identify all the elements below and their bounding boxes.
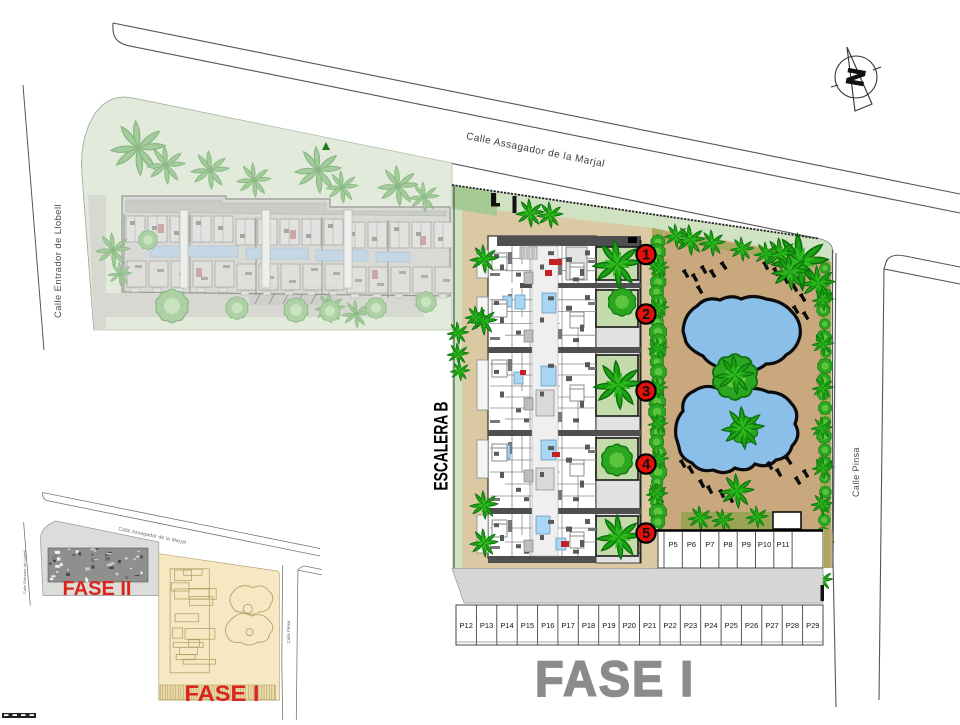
svg-text:P27: P27 [765,621,778,630]
svg-text:P29: P29 [806,621,819,630]
svg-text:P22: P22 [663,621,676,630]
svg-text:P21: P21 [643,621,656,630]
svg-text:P24: P24 [704,621,717,630]
svg-text:P18: P18 [582,621,595,630]
svg-text:P10: P10 [758,540,771,549]
svg-text:ESCALERA B: ESCALERA B [432,402,453,491]
svg-text:P16: P16 [541,621,554,630]
svg-text:FASE I: FASE I [185,681,260,706]
svg-text:FASE II: FASE II [63,578,132,600]
svg-text:1: 1 [642,248,650,264]
svg-text:P12: P12 [460,621,473,630]
svg-text:Calle Pinsa: Calle Pinsa [851,447,861,497]
svg-text:P20: P20 [623,621,636,630]
svg-text:P23: P23 [684,621,697,630]
svg-text:P5: P5 [669,540,678,549]
svg-text:P7: P7 [705,540,714,549]
svg-text:3: 3 [642,384,650,400]
svg-text:P17: P17 [561,621,574,630]
svg-text:P6: P6 [687,540,696,549]
svg-text:P25: P25 [725,621,738,630]
svg-text:4: 4 [642,457,650,473]
svg-text:Calle Pinsa: Calle Pinsa [286,620,291,643]
svg-text:P15: P15 [521,621,534,630]
svg-text:P13: P13 [480,621,493,630]
svg-text:FASE I: FASE I [535,651,695,707]
svg-text:P14: P14 [500,621,513,630]
svg-text:P8: P8 [723,540,732,549]
svg-text:P28: P28 [786,621,799,630]
svg-text:5: 5 [642,526,650,542]
svg-text:P26: P26 [745,621,758,630]
svg-text:2: 2 [642,307,650,323]
svg-text:P11: P11 [777,540,790,549]
svg-text:P19: P19 [602,621,615,630]
svg-text:Calle Entrador de Llobell: Calle Entrador de Llobell [22,550,27,594]
svg-text:P9: P9 [742,540,751,549]
svg-text:Calle Entrador de Llobell: Calle Entrador de Llobell [53,204,64,318]
